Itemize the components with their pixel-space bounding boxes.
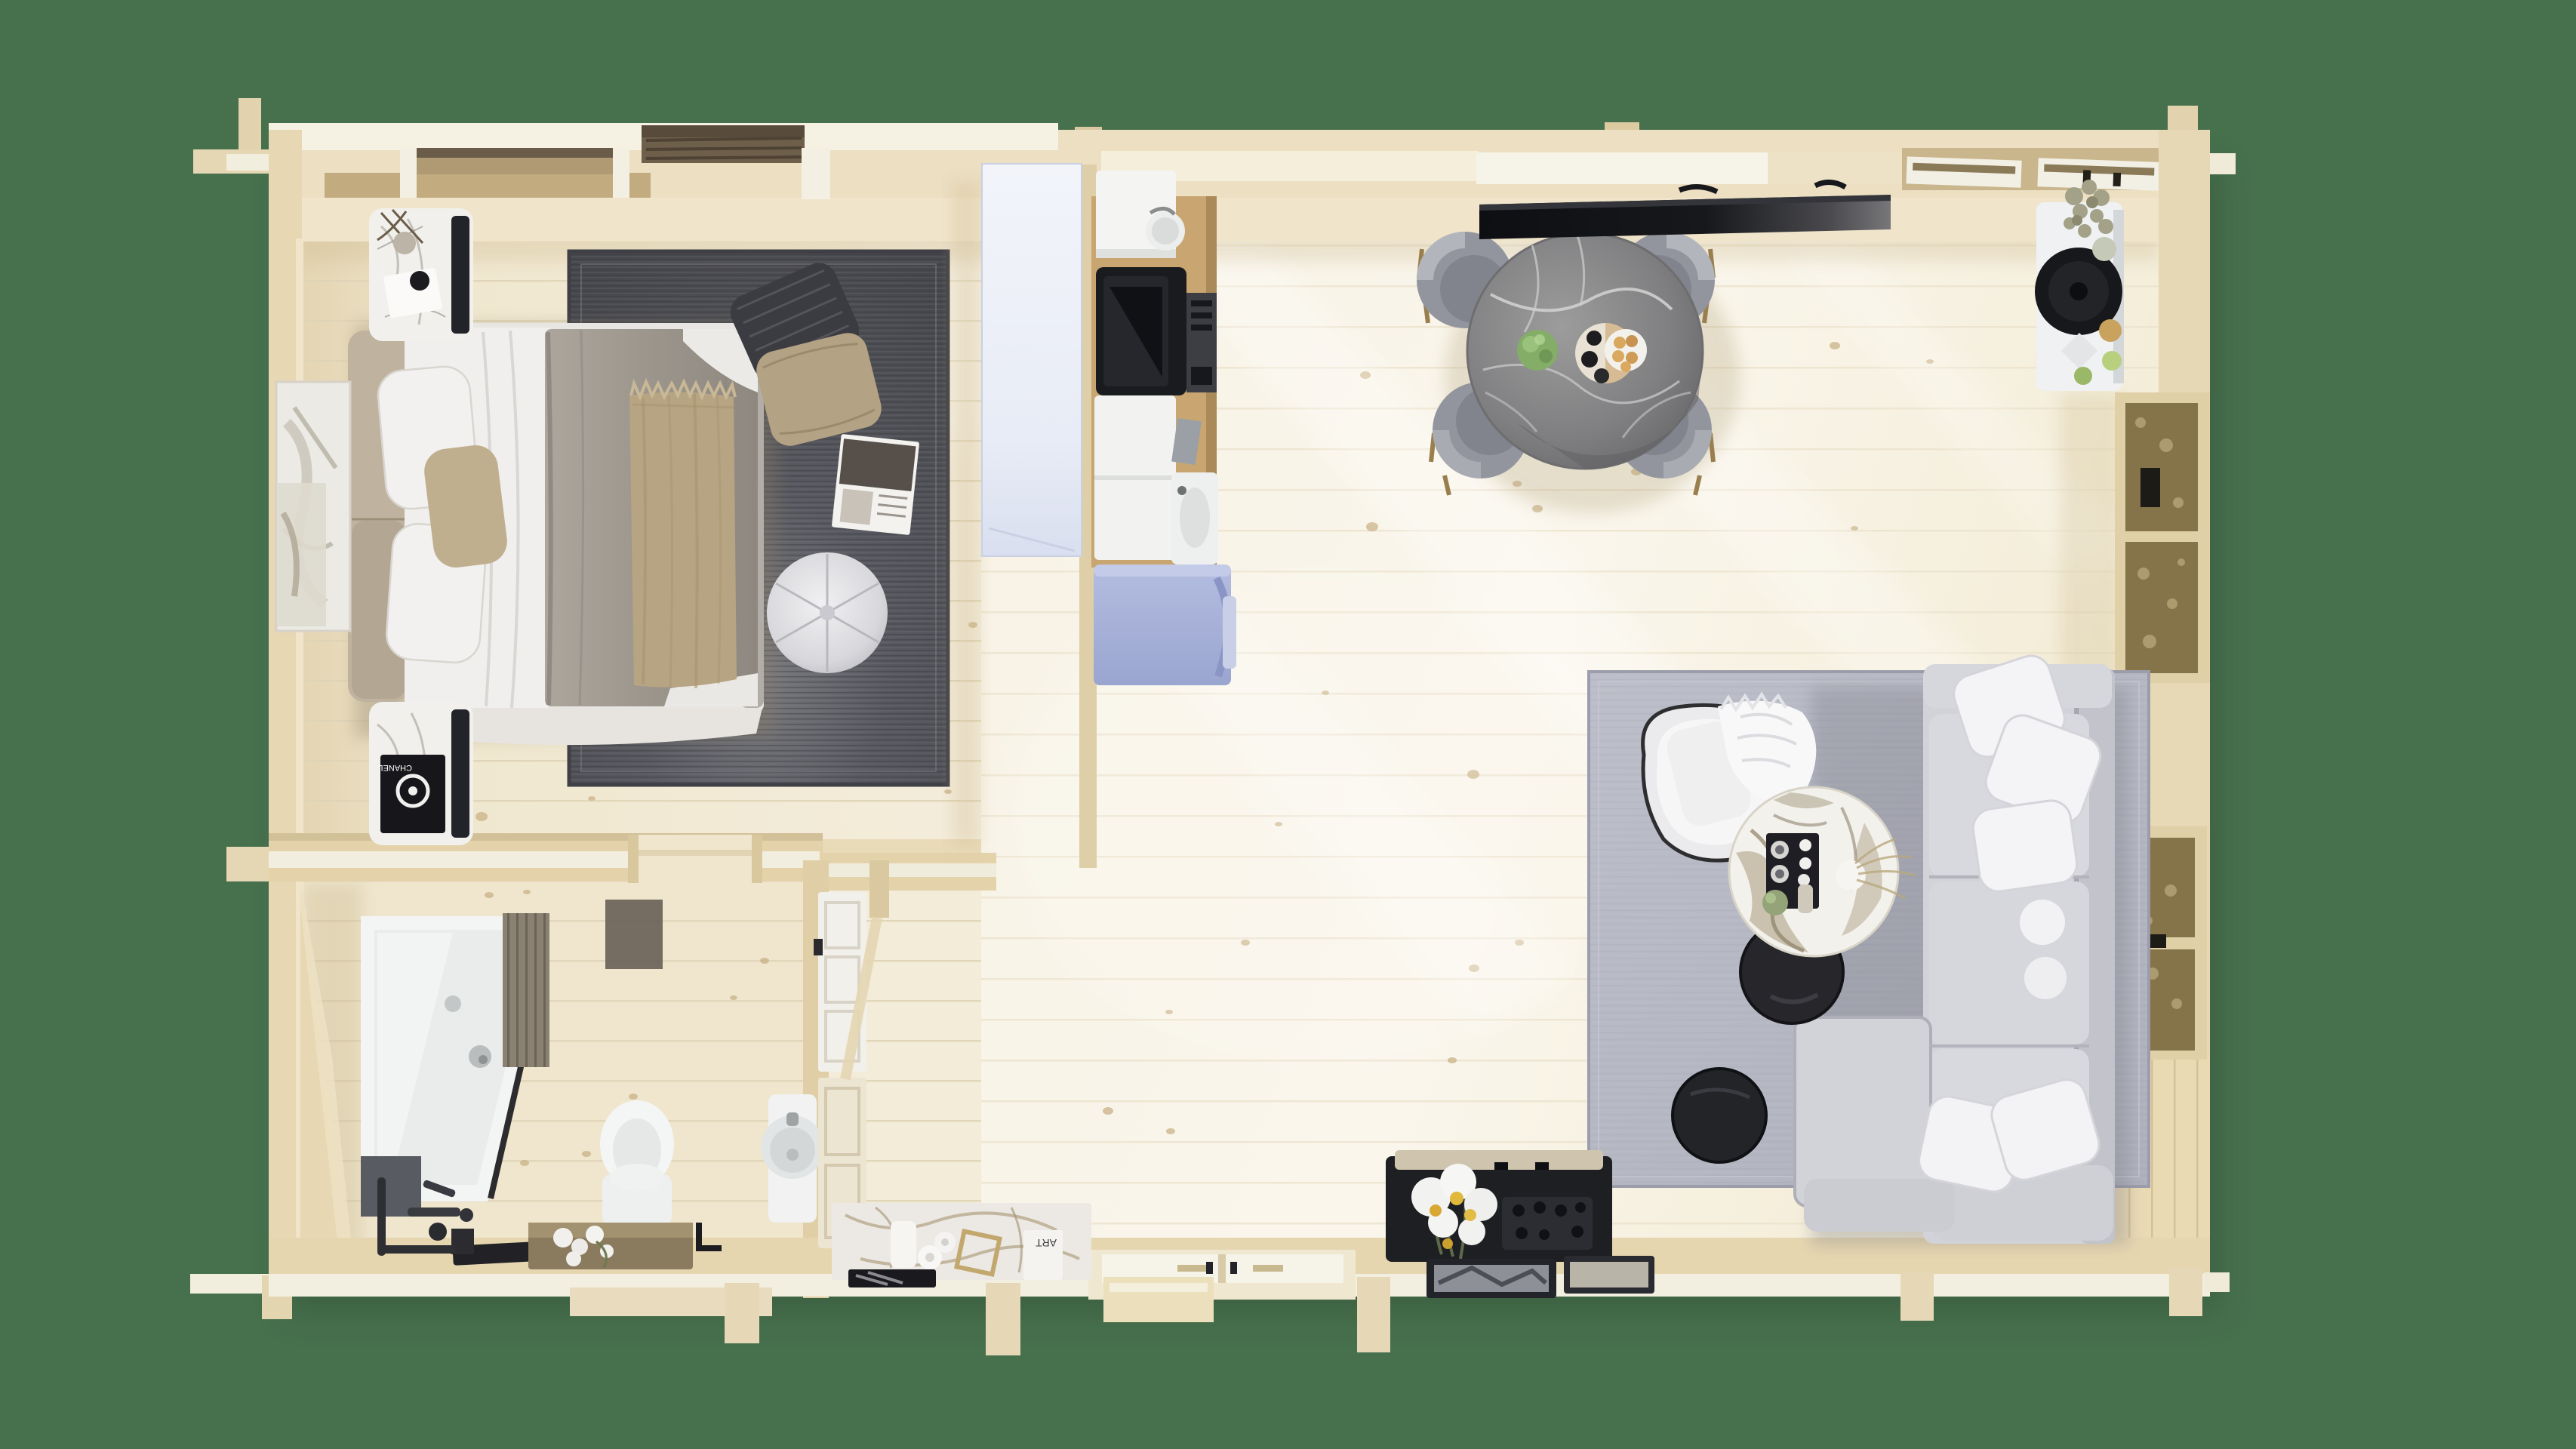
svg-text:ART: ART <box>1036 1237 1057 1249</box>
svg-text:CHANEL: CHANEL <box>378 763 412 772</box>
